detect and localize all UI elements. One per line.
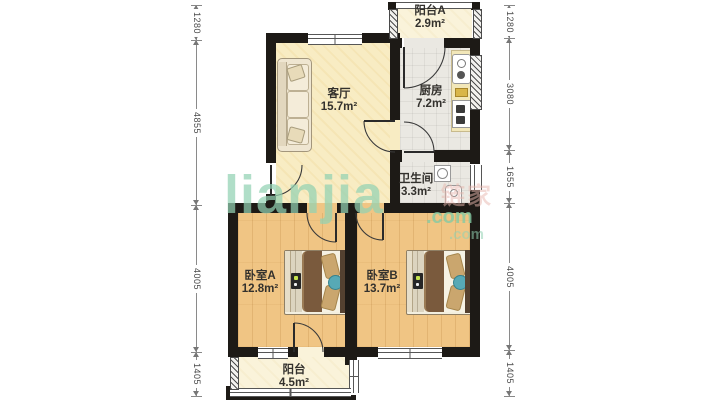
room-label-bathroom: 卫生间 3.3m² bbox=[381, 173, 451, 199]
room-name: 卧室A bbox=[225, 270, 295, 283]
room-area: 13.7m² bbox=[347, 283, 417, 296]
room-name: 客厅 bbox=[304, 88, 374, 101]
room-area: 4.5m² bbox=[259, 377, 329, 390]
room-name: 卧室B bbox=[347, 270, 417, 283]
room-area: 15.7m² bbox=[304, 101, 374, 114]
room-label-balcony-a: 阳台A 2.9m² bbox=[395, 5, 465, 31]
room-label-bedroom-a: 卧室A 12.8m² bbox=[225, 270, 295, 296]
room-label-living-room: 客厅 15.7m² bbox=[304, 88, 374, 114]
room-name: 厨房 bbox=[396, 85, 466, 98]
room-area: 3.3m² bbox=[381, 186, 451, 199]
floor-plan: lianjia .com 链家 .com 阳台A 2.9m² 厨房 7.2m² … bbox=[0, 0, 710, 400]
door-swing-overlay bbox=[0, 0, 710, 400]
room-area: 2.9m² bbox=[395, 18, 465, 31]
room-name: 卫生间 bbox=[381, 173, 451, 186]
room-area: 12.8m² bbox=[225, 283, 295, 296]
room-name: 阳台A bbox=[395, 5, 465, 18]
room-label-kitchen: 厨房 7.2m² bbox=[396, 85, 466, 111]
room-label-balcony: 阳台 4.5m² bbox=[259, 364, 329, 390]
room-name: 阳台 bbox=[259, 364, 329, 377]
room-area: 7.2m² bbox=[396, 98, 466, 111]
room-label-bedroom-b: 卧室B 13.7m² bbox=[347, 270, 417, 296]
